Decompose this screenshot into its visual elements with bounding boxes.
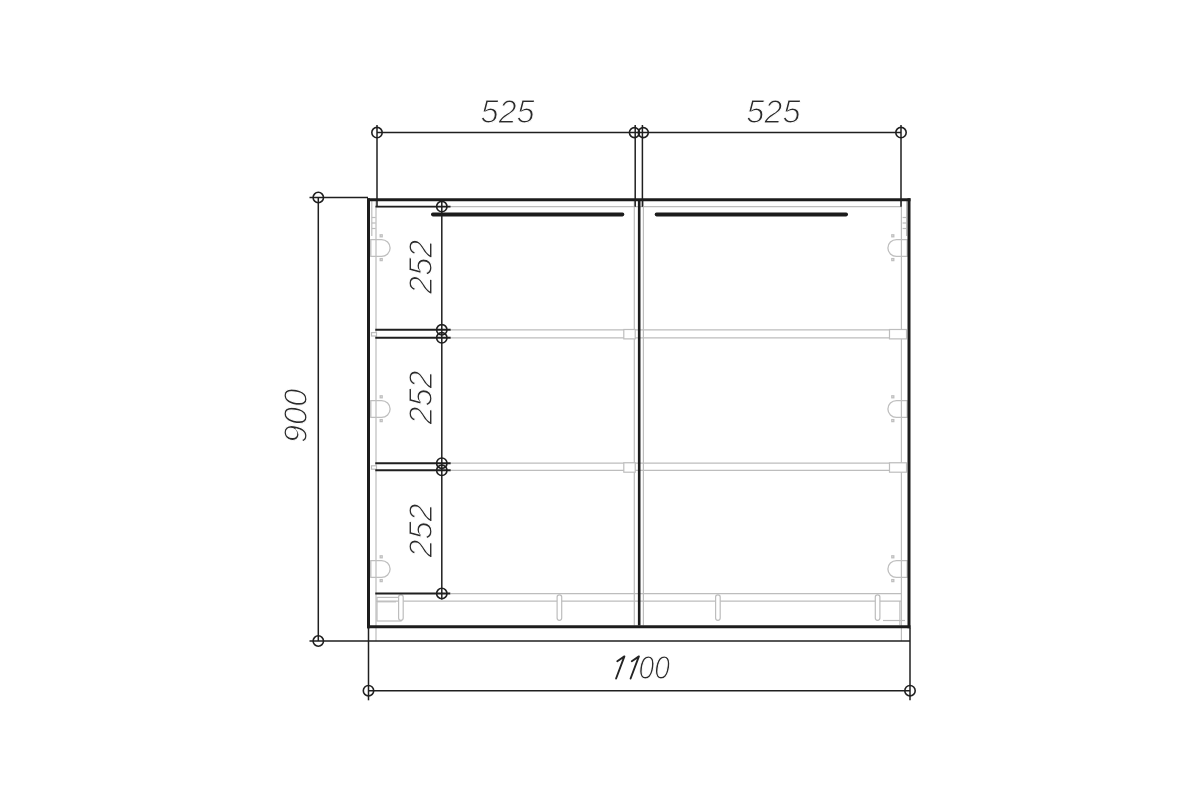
svg-text:252: 252: [403, 240, 439, 295]
svg-text:252: 252: [403, 370, 439, 425]
svg-text:900: 900: [278, 389, 314, 443]
svg-text:525: 525: [746, 94, 801, 130]
svg-text:252: 252: [403, 503, 439, 558]
svg-text:525: 525: [480, 94, 535, 130]
svg-text:00: 00: [638, 650, 670, 686]
